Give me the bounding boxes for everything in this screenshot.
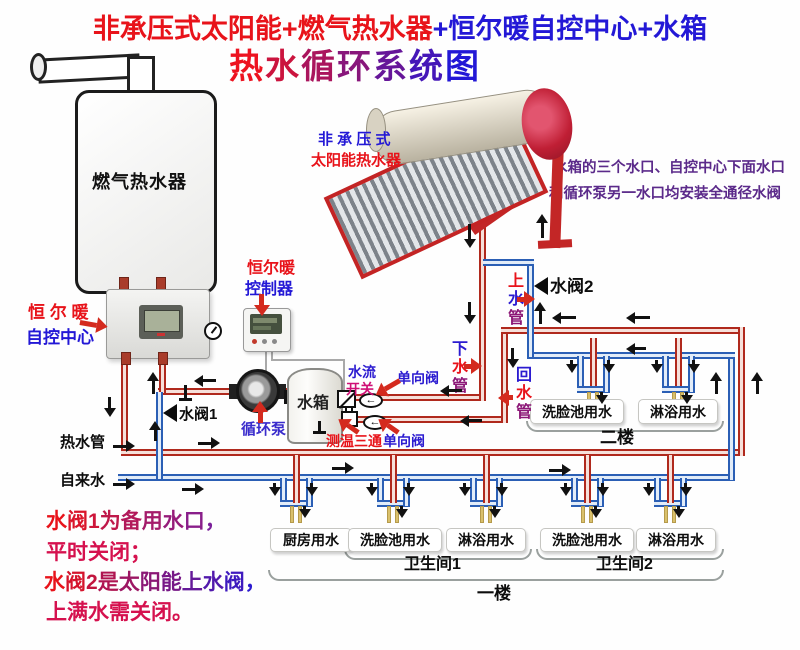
pipe-fitting	[184, 385, 187, 399]
check-valve-bottom-label: 单向阀	[383, 433, 425, 449]
floor1-bracket	[268, 570, 724, 581]
controller-wire-horizontal	[271, 359, 345, 361]
pipe-backup-valve1	[156, 392, 163, 479]
chimney-pipe-horizontal	[37, 53, 140, 83]
pipe-fitting	[284, 390, 287, 404]
fixture-hot-drop	[584, 455, 591, 503]
control-center-label-line2: 自控中心	[26, 328, 94, 348]
controller-label-line2: 控制器	[245, 281, 293, 299]
chimney-elbow-patch	[131, 60, 151, 77]
pipe-solar-supply-top	[483, 259, 534, 266]
note-right-line1: 水箱的三个水口、自控中心下面水口	[553, 160, 785, 177]
hot-pipe-label: 热水管	[60, 434, 105, 451]
note-bottom-line4: 上满水需关闭。	[46, 601, 193, 625]
note-bottom-line2: 平时关闭；	[46, 541, 151, 565]
pipe-tap-floor1	[118, 474, 735, 481]
control-center-unit	[106, 289, 210, 359]
solar-label-line2: 太阳能热水器	[311, 152, 401, 169]
page-title: 非承压式太阳能+燃气热水器+恒尔暖自控中心+水箱	[0, 14, 800, 45]
fixture-label-b1-sink: 洗脸池用水	[348, 528, 442, 552]
title-red-part: 非承压式太阳能+燃气热水器	[93, 14, 433, 44]
title-blue-part: +恒尔暖自控中心+水箱	[433, 14, 708, 44]
pipe-return-vertical	[501, 330, 508, 423]
pipe-hot-floor2	[501, 327, 745, 334]
pipe-hot-right-riser	[738, 327, 745, 456]
pump-label: 循环泵	[241, 421, 286, 438]
faucet-stub	[664, 506, 668, 523]
flow-switch-label-line1: 水流	[348, 364, 376, 380]
controller-wire-down	[343, 359, 345, 391]
floor1-label: 一楼	[477, 584, 511, 604]
fixture-label-b2-sink: 洗脸池用水	[540, 528, 634, 552]
fixture-label-f2-shower: 淋浴用水	[638, 399, 718, 424]
control-center-port-left	[121, 352, 131, 365]
check-valve-top-label: 单向阀	[397, 370, 439, 386]
faucet-stub	[581, 506, 585, 523]
gas-heater-label: 燃气热水器	[92, 172, 187, 193]
pipe-solar-supply-up	[527, 262, 534, 357]
note-bottom-line1: 水阀1为备用水口，	[46, 510, 226, 534]
fixture-hot-drop	[390, 455, 397, 503]
valve2-symbol	[534, 277, 548, 295]
return-pipe-label: 回 水 管	[516, 367, 532, 422]
solar-leg-front	[549, 150, 563, 248]
water-tank-label: 水箱	[297, 395, 329, 413]
pipe-fitting	[179, 398, 192, 401]
solar-label-line1: 非 承 压 式	[318, 131, 391, 148]
note-bottom-line3: 水阀2是太阳能上水阀，	[44, 571, 266, 595]
temp-tee-nub	[345, 406, 353, 413]
pipe-hot-floor1	[121, 449, 745, 456]
temp-tee-label: 测温三通	[326, 433, 382, 449]
valve1-label: 水阀1	[179, 406, 217, 423]
diagram-canvas: 非承压式太阳能+燃气热水器+恒尔暖自控中心+水箱 热水循环系统图 燃气热水器 恒…	[0, 0, 800, 650]
floor2-label: 二楼	[600, 428, 634, 448]
pointer-arrow	[377, 381, 400, 394]
fixture-label-f2-sink: 洗脸池用水	[530, 399, 624, 424]
pipe-fitting	[313, 431, 326, 434]
fixture-label-b1-shower: 淋浴用水	[446, 528, 526, 552]
pipe-cold-right-riser	[728, 352, 735, 480]
control-center-port-right	[158, 352, 168, 365]
bathroom1-label: 卫生间1	[404, 556, 461, 574]
faucet-stub	[480, 506, 484, 523]
valve2-label: 水阀2	[550, 277, 593, 297]
pointer-arrow	[80, 322, 106, 327]
pressure-gauge-icon	[204, 322, 222, 340]
solar-foot	[538, 239, 572, 249]
fixture-hot-drop	[483, 455, 490, 503]
fixture-hot-drop	[293, 455, 300, 503]
fixture-hot-drop	[675, 338, 682, 386]
down-pipe-label: 下 水 管	[452, 341, 468, 396]
fixture-hot-drop	[590, 338, 597, 386]
control-center-display	[139, 305, 183, 339]
note-right-line2: 和循环泵另一水口均安装全通径水阀	[549, 186, 781, 203]
faucet-stub	[387, 506, 391, 523]
chimney-end-cap	[30, 53, 47, 81]
flow-switch-label-line2: 开关	[346, 381, 374, 397]
fixture-hot-drop	[667, 455, 674, 503]
bathroom2-label: 卫生间2	[596, 556, 653, 574]
faucet-stub	[290, 506, 294, 523]
fixture-label-b2-shower: 淋浴用水	[636, 528, 716, 552]
fixture-label-kitchen: 厨房用水	[270, 528, 352, 552]
controller-label-line1: 恒尔暖	[247, 260, 295, 278]
valve1-symbol	[163, 404, 177, 422]
tap-water-label: 自来水	[60, 472, 105, 489]
